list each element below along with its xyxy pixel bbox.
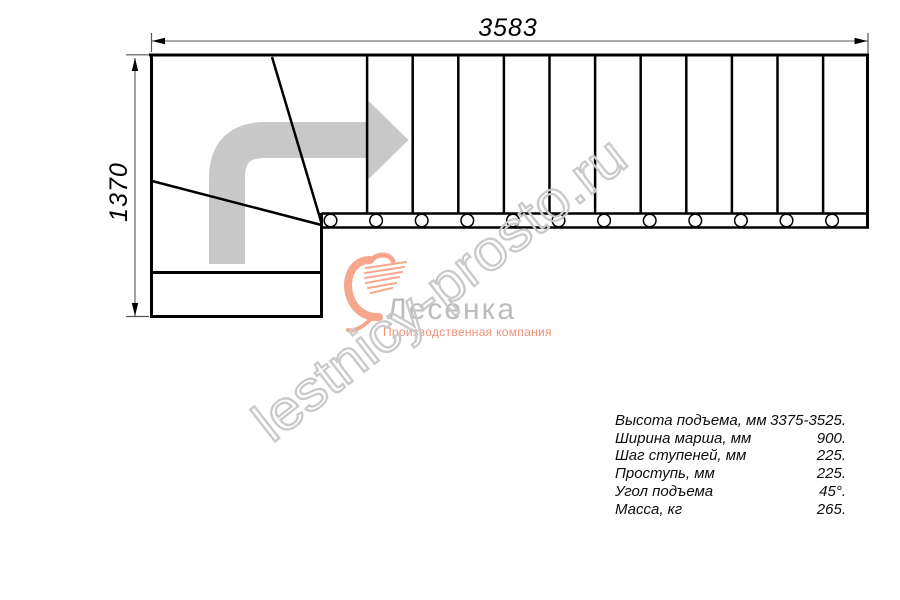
spec-row: Ширина марша, мм 900. bbox=[615, 430, 846, 448]
spec-value: 45°. bbox=[819, 483, 846, 501]
direction-arrow-head-icon bbox=[367, 100, 409, 181]
dimension-left-value: 1370 bbox=[105, 162, 133, 222]
baluster-circle bbox=[370, 214, 383, 227]
spec-value: 225. bbox=[817, 447, 846, 465]
spec-value: 900. bbox=[817, 430, 846, 448]
site-watermark: lestnicy-prosto.ru bbox=[241, 124, 638, 454]
dim-arrow-left-icon bbox=[152, 38, 165, 44]
baluster-circle bbox=[780, 214, 793, 227]
baluster-circle bbox=[598, 214, 611, 227]
direction-arrow bbox=[227, 100, 409, 265]
stair-outline bbox=[149, 54, 869, 319]
baluster-circle bbox=[643, 214, 656, 227]
spec-value: 265. bbox=[817, 501, 846, 519]
spec-row: Проступь, мм 225. bbox=[615, 465, 846, 483]
baluster-circle bbox=[324, 214, 337, 227]
dim-arrow-up-icon bbox=[132, 58, 138, 71]
spec-label: Проступь, мм bbox=[615, 465, 715, 483]
spec-row: Шаг ступеней, мм 225. bbox=[615, 447, 846, 465]
baluster-circle bbox=[689, 214, 702, 227]
spec-value: 225. bbox=[817, 465, 846, 483]
dim-arrow-down-icon bbox=[132, 303, 138, 316]
spec-label: Шаг ступеней, мм bbox=[615, 447, 746, 465]
staircase-drawing-page: 3583 1370 bbox=[0, 0, 900, 600]
baluster-circle bbox=[415, 214, 428, 227]
spec-row: Масса, кг 265. bbox=[615, 501, 846, 519]
dimension-top-value: 3583 bbox=[478, 14, 538, 42]
logo-right-lobe bbox=[371, 255, 393, 261]
dimension-top: 3583 bbox=[152, 14, 869, 54]
spec-table: Высота подъема, мм 3375-3525. Ширина мар… bbox=[615, 412, 846, 518]
dim-arrow-right-icon bbox=[855, 38, 868, 44]
dimension-left: 1370 bbox=[105, 55, 149, 317]
spec-row: Высота подъема, мм 3375-3525. bbox=[615, 412, 846, 430]
spec-value: 3375-3525. bbox=[770, 412, 846, 430]
spec-label: Угол подъема bbox=[615, 483, 713, 501]
spec-label: Высота подъема, мм bbox=[615, 412, 767, 430]
spec-label: Масса, кг bbox=[615, 501, 682, 519]
spec-row: Угол подъема 45°. bbox=[615, 483, 846, 501]
baluster-circle bbox=[735, 214, 748, 227]
baluster-circle bbox=[826, 214, 839, 227]
spec-label: Ширина марша, мм bbox=[615, 430, 751, 448]
direction-arrow-shaft bbox=[227, 140, 367, 264]
